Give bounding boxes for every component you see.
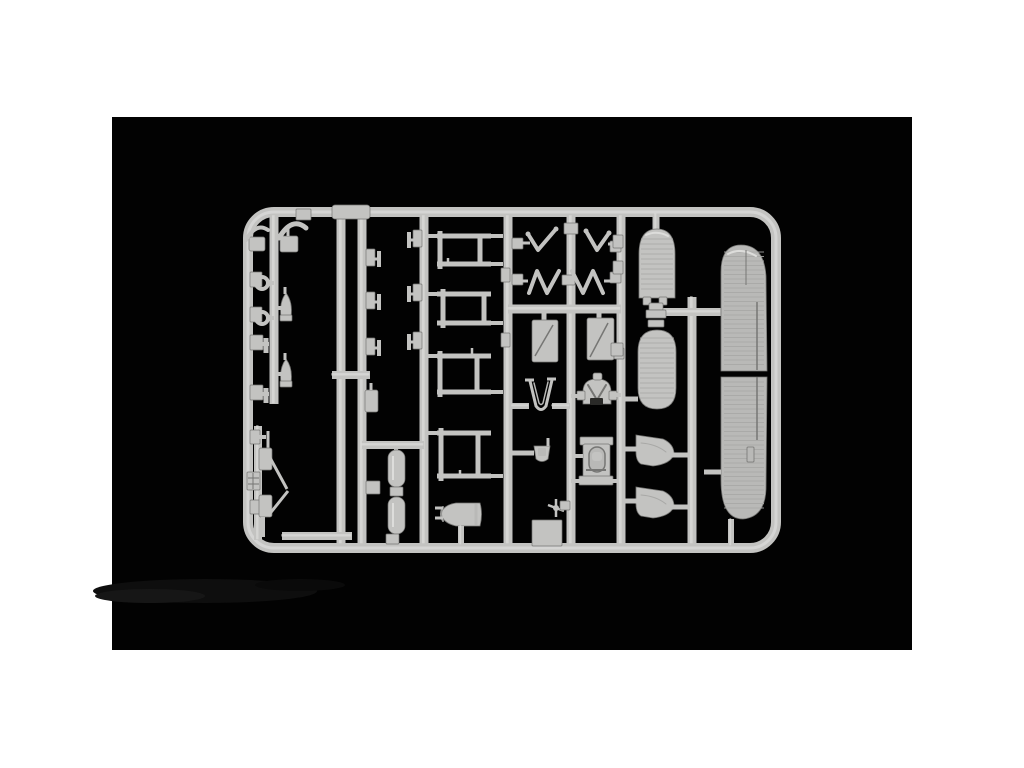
part-vstrut-1-tip-a	[526, 232, 531, 237]
pad-f-3	[611, 343, 623, 356]
part-small-float-1-base	[280, 315, 292, 321]
part-capsule-1	[388, 450, 405, 487]
capsule-2-foot	[386, 534, 399, 544]
floor-reflection-dim	[255, 579, 345, 591]
sprue-photo-canvas	[0, 0, 1024, 768]
part-wing-lower	[721, 377, 767, 519]
part-vstrut-2-tip-a	[584, 229, 589, 234]
part-block-b2	[366, 481, 380, 494]
part-capsule-2	[388, 497, 405, 534]
cup-detail	[538, 448, 546, 456]
part-crescent-pad-1	[249, 237, 265, 251]
part-crescent-pad-2	[280, 236, 298, 252]
part-small-float-2-base	[280, 381, 292, 387]
part-bracket-b2-4	[365, 390, 378, 412]
cockpit-seat	[592, 452, 602, 461]
propeller-pad	[560, 501, 570, 510]
pad-d-left-1	[501, 268, 510, 282]
part-vstrut-1-tip-b	[554, 227, 559, 232]
gun-ring-knob	[593, 373, 602, 380]
runner-e-top-tab	[564, 223, 578, 234]
float-link-1	[649, 303, 663, 310]
frame-top-tab	[296, 209, 311, 220]
sprue-product-photo	[0, 0, 1024, 768]
part-block-e	[532, 520, 562, 546]
floor-reflection-bright	[95, 589, 205, 603]
float-link-3	[648, 320, 664, 327]
gun-ring-lug-left	[577, 391, 585, 400]
part-vstrut-2-tip-b	[607, 231, 612, 236]
float-link-2	[646, 310, 666, 318]
pad-d-left-2	[501, 333, 510, 347]
part-propeller-hub	[553, 505, 559, 511]
part-float-half-b	[638, 330, 676, 409]
frame-top-gate	[332, 205, 370, 219]
wing-lower-detail	[747, 447, 754, 462]
pad-f-1	[613, 235, 623, 248]
capsule-link	[390, 487, 403, 496]
pad-f-2	[613, 261, 623, 274]
part-wing-upper	[721, 245, 767, 371]
cockpit-flange-bottom	[579, 476, 613, 485]
gun-ring-opening	[590, 398, 603, 405]
